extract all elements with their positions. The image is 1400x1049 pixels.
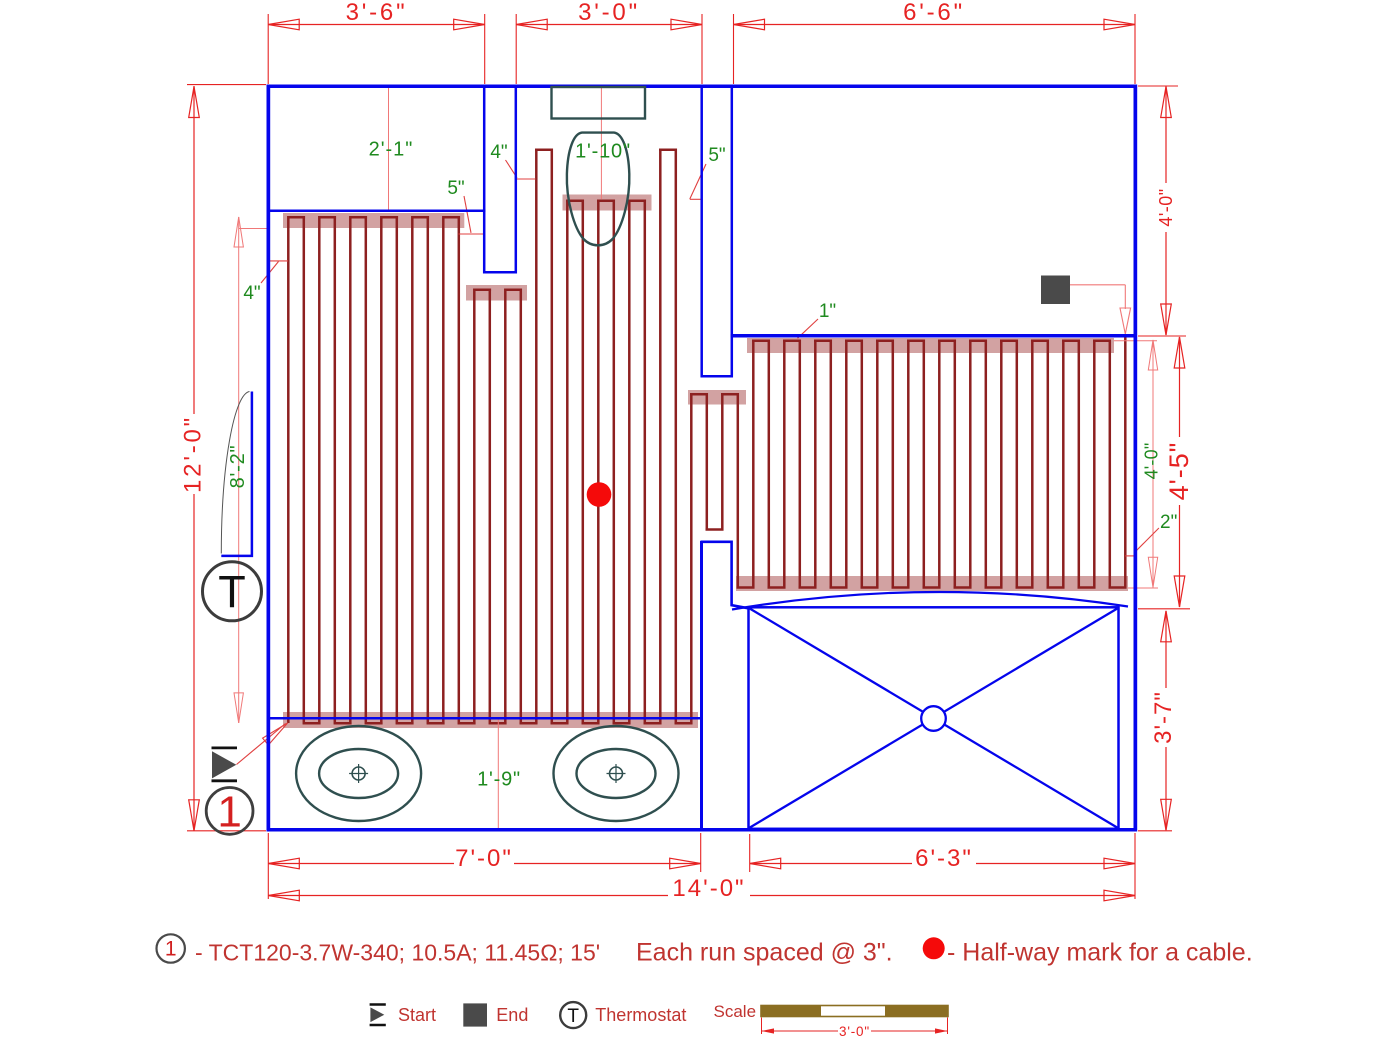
svg-text:4": 4" (243, 283, 260, 304)
svg-text:3'-0": 3'-0" (578, 0, 640, 26)
svg-text:Scale: Scale (714, 1002, 757, 1021)
svg-text:6'-3": 6'-3" (915, 845, 973, 872)
svg-text:1'-9": 1'-9" (477, 769, 521, 791)
svg-text:2": 2" (1160, 512, 1177, 533)
svg-text:T: T (218, 567, 246, 618)
svg-text:1: 1 (217, 788, 241, 837)
svg-text:5": 5" (447, 178, 464, 199)
svg-text:8'-2": 8'-2" (227, 445, 249, 489)
svg-text:Thermostat: Thermostat (595, 1005, 686, 1025)
svg-text:5": 5" (708, 145, 725, 166)
svg-text:12'-0": 12'-0" (180, 415, 207, 493)
svg-text:Start: Start (398, 1005, 436, 1025)
svg-text:4'-5": 4'-5" (1164, 442, 1194, 501)
svg-text:4": 4" (490, 142, 507, 163)
svg-text:14'-0": 14'-0" (672, 875, 745, 902)
svg-text:7'-0": 7'-0" (455, 845, 513, 872)
svg-text:- Half-way mark for a cable.: - Half-way mark for a cable. (947, 939, 1253, 967)
svg-text:4'-0": 4'-0" (1156, 188, 1176, 226)
svg-text:3'-0": 3'-0" (839, 1024, 870, 1039)
svg-text:1: 1 (165, 938, 177, 961)
svg-text:1": 1" (819, 301, 836, 322)
svg-text:- TCT120-3.7W-340; 10.5A; 11.4: - TCT120-3.7W-340; 10.5A; 11.45Ω; 15' (195, 940, 600, 966)
svg-text:Each run spaced @ 3".: Each run spaced @ 3". (636, 939, 893, 967)
svg-text:3'-6": 3'-6" (346, 0, 408, 26)
svg-text:3'-7": 3'-7" (1150, 691, 1177, 744)
svg-text:1'-10": 1'-10" (575, 141, 631, 163)
svg-text:2'-1": 2'-1" (369, 139, 414, 161)
svg-text:4'-0": 4'-0" (1142, 443, 1162, 480)
svg-text:6'-6": 6'-6" (903, 0, 965, 26)
svg-text:T: T (567, 1006, 579, 1027)
svg-text:End: End (496, 1005, 528, 1025)
